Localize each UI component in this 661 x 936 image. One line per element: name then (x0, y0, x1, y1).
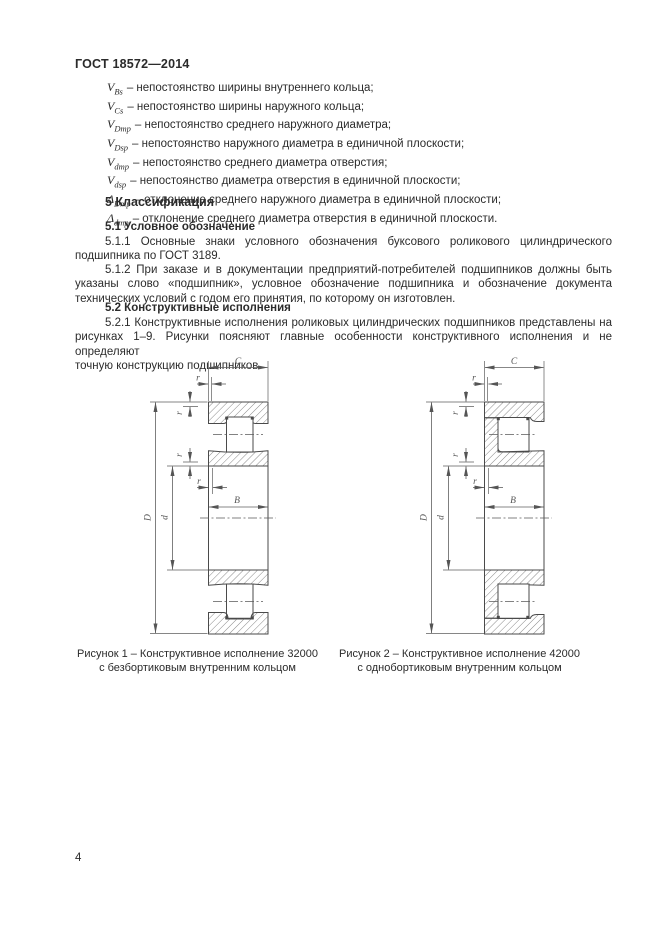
dim-label-B: B (510, 496, 516, 506)
inner-ring-bottom (209, 570, 269, 585)
definition-item: VDsp– непостоянство наружного диаметра в… (107, 136, 501, 155)
page-number: 4 (75, 852, 81, 864)
figure-1-caption: Рисунок 1 – Конструктивное исполнение 32… (75, 648, 320, 676)
dim-label-r: r (175, 411, 185, 415)
paragraph-line: 5.1.1 Основные знаки условного обозначен… (75, 235, 612, 249)
paragraph-5-1-2: 5.1.2 При заказе и в документации предпр… (75, 263, 612, 306)
subsection-5-2-heading: 5.2 Конструктивные исполнения (105, 302, 291, 314)
paragraph-5-1-1: 5.1.1 Основные знаки условного обозначен… (75, 235, 612, 264)
document-page: ГОСТ 18572—2014 VBs– непостоянство ширин… (0, 0, 661, 936)
definition-text: – непостоянство наружного диаметра в еди… (132, 138, 464, 150)
caption-line: с безбортиковым внутренним кольцом (75, 662, 320, 676)
dim-label-B: B (234, 496, 240, 506)
dim-label-r: r (451, 411, 461, 415)
symbol: VDsp (107, 136, 128, 150)
definition-text: – непостоянство среднего наружного диаме… (135, 119, 391, 131)
figure-1-drawing: C r r r r B D d (140, 352, 310, 648)
dim-label-d: d (161, 515, 171, 520)
definition-item: VDmp– непостоянство среднего наружного д… (107, 117, 501, 136)
definition-item: Vdmp– непостоянство среднего диаметра от… (107, 155, 501, 174)
symbol: Vdsp (107, 173, 126, 187)
symbol: VDmp (107, 117, 131, 131)
symbol: Vdmp (107, 155, 129, 169)
definition-text: – непостоянство ширины наружного кольца; (127, 101, 364, 113)
figure-2-caption: Рисунок 2 – Конструктивное исполнение 42… (337, 648, 582, 676)
subsection-5-1-heading: 5.1 Условное обозначение (105, 221, 255, 233)
dim-label-C: C (511, 357, 518, 367)
figure-2-drawing: C r r r r B D d (416, 352, 586, 648)
definition-text: – непостоянство среднего диаметра отверс… (133, 157, 387, 169)
caption-line: Рисунок 2 – Конструктивное исполнение 42… (337, 648, 582, 662)
definition-item: Vdsp– непостоянство диаметра отверстия в… (107, 173, 501, 192)
document-title: ГОСТ 18572—2014 (75, 57, 190, 71)
dim-label-d: d (437, 515, 447, 520)
dim-label-D: D (144, 514, 154, 522)
caption-line: Рисунок 1 – Конструктивное исполнение 32… (75, 648, 320, 662)
section-heading: 5 Классификация (105, 195, 214, 209)
dim-label-C: C (235, 357, 242, 367)
symbol: VCs (107, 99, 123, 113)
definition-item: VBs– непостоянство ширины внутреннего ко… (107, 80, 501, 99)
dim-label-r: r (196, 374, 200, 384)
inner-ring-top (209, 451, 269, 466)
definition-text: – непостоянство ширины внутреннего кольц… (127, 82, 374, 94)
definition-item: VCs– непостоянство ширины наружного коль… (107, 99, 501, 118)
paragraph-line: 5.2.1 Конструктивные исполнения роликовы… (75, 316, 612, 330)
dim-label-r: r (197, 477, 201, 487)
dim-label-r: r (473, 477, 477, 487)
dim-label-D: D (420, 514, 430, 522)
paragraph-line: указаны слово «подшипник», условное обоз… (75, 277, 612, 291)
definition-text: – непостоянство диаметра отверстия в еди… (130, 175, 460, 187)
paragraph-line: 5.1.2 При заказе и в документации предпр… (75, 263, 612, 277)
paragraph-line: подшипника по ГОСТ 3189. (75, 249, 612, 263)
caption-line: с однобортиковым внутренним кольцом (337, 662, 582, 676)
dim-label-r: r (175, 453, 185, 457)
symbol: VBs (107, 80, 123, 94)
dim-label-r: r (472, 374, 476, 384)
dim-label-r: r (451, 453, 461, 457)
